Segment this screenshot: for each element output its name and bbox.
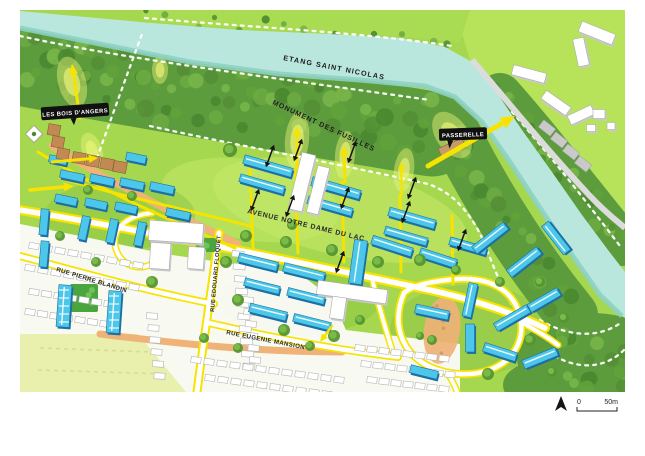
tree-dot [191, 114, 205, 128]
sketch-house [379, 378, 390, 385]
tree-highlight [241, 231, 248, 238]
tree-dot [512, 212, 521, 221]
tree-highlight [417, 333, 422, 338]
park-tree [89, 287, 95, 293]
north-arrow-icon [555, 396, 567, 411]
tree-dot [379, 134, 396, 151]
tree-highlight [92, 258, 98, 264]
tree-highlight [415, 255, 422, 262]
tree-highlight [200, 334, 206, 340]
tree-highlight [548, 368, 554, 374]
sketch-house [218, 376, 229, 383]
sketch-house [205, 374, 216, 381]
tree-dot [281, 21, 287, 27]
tree-dot [393, 96, 401, 104]
tree-dot [614, 366, 625, 377]
tree-highlight [225, 145, 234, 154]
plaza-dot [442, 326, 446, 330]
tree-dot [330, 102, 347, 119]
sketch-house [79, 296, 90, 303]
map-area: ETANG SAINT NICOLAS MONUMENT DES FUSILLE… [0, 8, 645, 410]
sketch-house [361, 360, 372, 367]
tree-dot [563, 289, 579, 305]
tree-highlight [306, 342, 312, 348]
sketch-house [269, 367, 280, 374]
sketch-house [335, 392, 346, 399]
tree-dot [161, 11, 168, 18]
tree-dot [399, 31, 405, 37]
sketch-house [245, 321, 256, 328]
sketch-house [129, 283, 140, 291]
sketch-house [149, 337, 160, 344]
building [466, 324, 477, 354]
tree-highlight [428, 336, 434, 342]
sketch-house [270, 383, 281, 390]
building [593, 110, 607, 121]
direction-arrow [401, 170, 402, 194]
sketch-house [391, 379, 402, 386]
tree-dot [412, 140, 425, 153]
tree-dot [619, 230, 629, 240]
tree-highlight [128, 192, 134, 198]
tree-highlight [234, 344, 240, 350]
sketch-house [445, 371, 456, 378]
sketch-house [282, 369, 293, 376]
tree-dot [240, 102, 250, 112]
tree-highlight [356, 316, 362, 322]
sketch-house [439, 385, 450, 392]
sketch-house [151, 349, 162, 356]
tree-dot [143, 8, 148, 13]
sketch-house [154, 373, 165, 380]
tree-dot [209, 110, 223, 124]
sketch-house [248, 345, 259, 352]
tree-dot [590, 336, 604, 350]
tree-highlight [147, 277, 154, 284]
sketch-house [439, 355, 450, 362]
tree-dot [106, 65, 119, 78]
plaza-dot [435, 304, 439, 308]
scale-bar: 0 50m [555, 396, 618, 411]
tree-dot [84, 46, 96, 58]
sketch-house [385, 363, 396, 370]
tree-dot [204, 70, 218, 84]
sketch-house [230, 362, 241, 369]
sketch-house [308, 373, 319, 380]
tree-highlight [233, 295, 240, 302]
building [113, 160, 128, 173]
building [56, 148, 70, 161]
tree-highlight [279, 325, 286, 332]
tree-highlight [56, 232, 62, 238]
direction-arrow [344, 155, 345, 182]
sketch-house [107, 257, 118, 265]
tree-highlight [496, 278, 502, 284]
building [187, 246, 206, 271]
sketch-house [87, 318, 98, 325]
building [329, 296, 348, 322]
sketch-house [152, 361, 163, 368]
path-glow [156, 62, 165, 77]
tree-highlight [525, 335, 532, 342]
tree-dot [584, 354, 595, 365]
scale-end: 50m [604, 399, 618, 406]
tree-dot [91, 56, 105, 70]
tree-dot [237, 122, 248, 133]
tree-dot [519, 227, 527, 235]
tree-dot [419, 118, 430, 129]
building [56, 285, 74, 330]
sketch-house [133, 261, 144, 269]
sketch-house [75, 316, 86, 323]
sketch-house [41, 290, 52, 297]
sketch-house [25, 264, 36, 272]
tree-highlight [84, 186, 90, 192]
sketch-house [217, 360, 228, 367]
scale-bracket [577, 407, 617, 411]
tree-highlight [560, 314, 566, 320]
tree-dot [170, 107, 181, 118]
tree-dot [262, 15, 270, 23]
sketch-house [231, 378, 242, 385]
sketch-house [120, 259, 131, 267]
sketch-house [249, 357, 260, 364]
sketch-house [244, 380, 255, 387]
sketch-house [146, 313, 157, 320]
tree-dot [616, 380, 629, 393]
tree-dot [526, 233, 537, 244]
sketch-house [373, 362, 384, 369]
tree-highlight [483, 369, 490, 376]
sketch-house [403, 381, 414, 388]
sketch-house [427, 353, 438, 360]
tree-dot [124, 99, 135, 110]
tree-dot [31, 68, 41, 78]
tree-dot [376, 108, 394, 126]
sketch-house [257, 382, 268, 389]
tree-dot [137, 100, 155, 118]
sketch-house [322, 391, 333, 398]
sketch-house [81, 252, 92, 260]
building [47, 124, 61, 137]
tree-dot [580, 381, 595, 396]
tree-dot [624, 355, 633, 364]
building [100, 157, 115, 170]
tree-dot [455, 165, 467, 177]
sketch-house [415, 352, 426, 359]
sketch-house [355, 344, 366, 351]
tree-dot [491, 196, 507, 212]
sketch-house [283, 385, 294, 392]
tree-highlight [281, 237, 288, 244]
sketch-house [295, 371, 306, 378]
sketch-house [391, 349, 402, 356]
site-plan-page: ETANG SAINT NICOLAS MONUMENT DES FUSILLE… [0, 0, 645, 456]
tree-highlight [329, 331, 336, 338]
site-plan-map: ETANG SAINT NICOLAS MONUMENT DES FUSILLE… [0, 0, 645, 456]
sketch-house [148, 325, 159, 332]
sketch-house [296, 387, 307, 394]
sketch-house [367, 346, 378, 353]
tree-dot [188, 73, 203, 88]
tree-dot [287, 92, 301, 106]
tree-dot [542, 257, 555, 270]
sketch-house [25, 308, 36, 315]
sketch-house [68, 249, 79, 257]
sketch-house [256, 365, 267, 372]
tree-highlight [373, 257, 380, 264]
tree-dot [0, 81, 16, 97]
tree-highlight [327, 245, 334, 252]
tree-highlight [221, 257, 228, 264]
tree-highlight [536, 278, 542, 284]
tree-highlight [452, 266, 458, 272]
tree-dot [102, 95, 111, 104]
tree-dot [473, 183, 488, 198]
sketch-house [91, 298, 102, 305]
sketch-house [55, 247, 66, 255]
sketch-house [37, 310, 48, 317]
sketch-house [415, 382, 426, 389]
tree-dot [212, 15, 217, 20]
tree-dot [211, 96, 221, 106]
sketch-house [403, 350, 414, 357]
tree-dot [275, 116, 285, 126]
building [148, 220, 205, 246]
tree-dot [136, 70, 151, 85]
building [51, 136, 65, 149]
building [106, 291, 124, 336]
tree-dot [221, 84, 230, 93]
tree-dot [402, 111, 418, 127]
sketch-house [29, 288, 40, 295]
tree-dot [360, 104, 371, 115]
sketch-house [191, 356, 202, 363]
sketch-house [427, 384, 438, 391]
map-marker-glyph [32, 132, 36, 136]
sketch-house [309, 389, 320, 396]
sketch-house [367, 376, 378, 383]
sketch-house [204, 358, 215, 365]
sketch-house [321, 374, 332, 381]
scale-start: 0 [577, 399, 581, 406]
sketch-house [334, 376, 345, 383]
tree-dot [167, 84, 176, 93]
sketch-house [29, 242, 40, 250]
sketch-house [397, 365, 408, 372]
tree-dot [223, 96, 236, 109]
tree-dot [608, 224, 615, 231]
sketch-house [379, 347, 390, 354]
sketch-house [243, 364, 254, 371]
plaza-dot [440, 351, 444, 355]
building [149, 242, 172, 271]
tree-dot [563, 371, 573, 381]
sketch-house [235, 288, 247, 295]
tree-dot [617, 344, 632, 359]
